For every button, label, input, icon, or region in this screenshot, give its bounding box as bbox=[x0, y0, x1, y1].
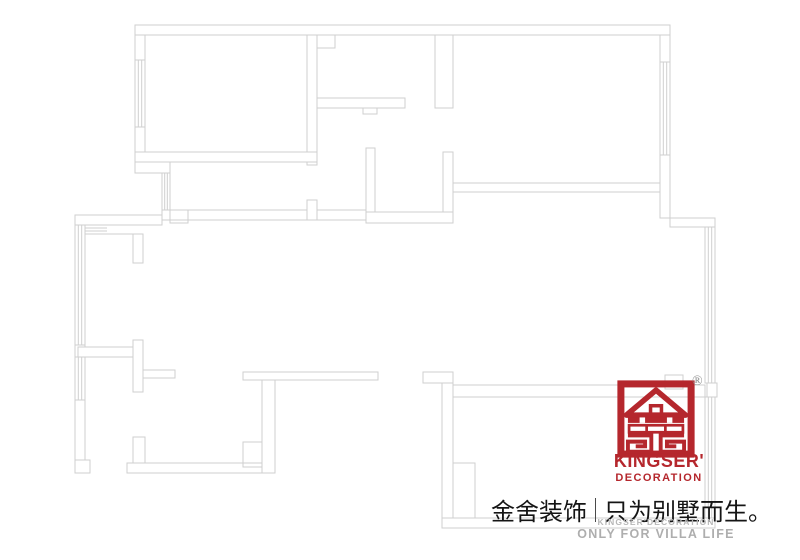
kingser-house-mark-icon bbox=[617, 380, 695, 458]
brand-subtitle: DECORATION bbox=[612, 472, 706, 484]
page: ® KINGSER' DECORATION 金舍装饰 只为别墅而生。 KINGS… bbox=[0, 0, 800, 560]
brand-name: KINGSER' bbox=[612, 451, 706, 472]
registered-mark: ® bbox=[692, 374, 703, 390]
footer-brand-line: KINGSER'DECORATION bbox=[556, 517, 756, 527]
footer-tagline: ONLY FOR VILLA LIFE bbox=[556, 527, 756, 541]
